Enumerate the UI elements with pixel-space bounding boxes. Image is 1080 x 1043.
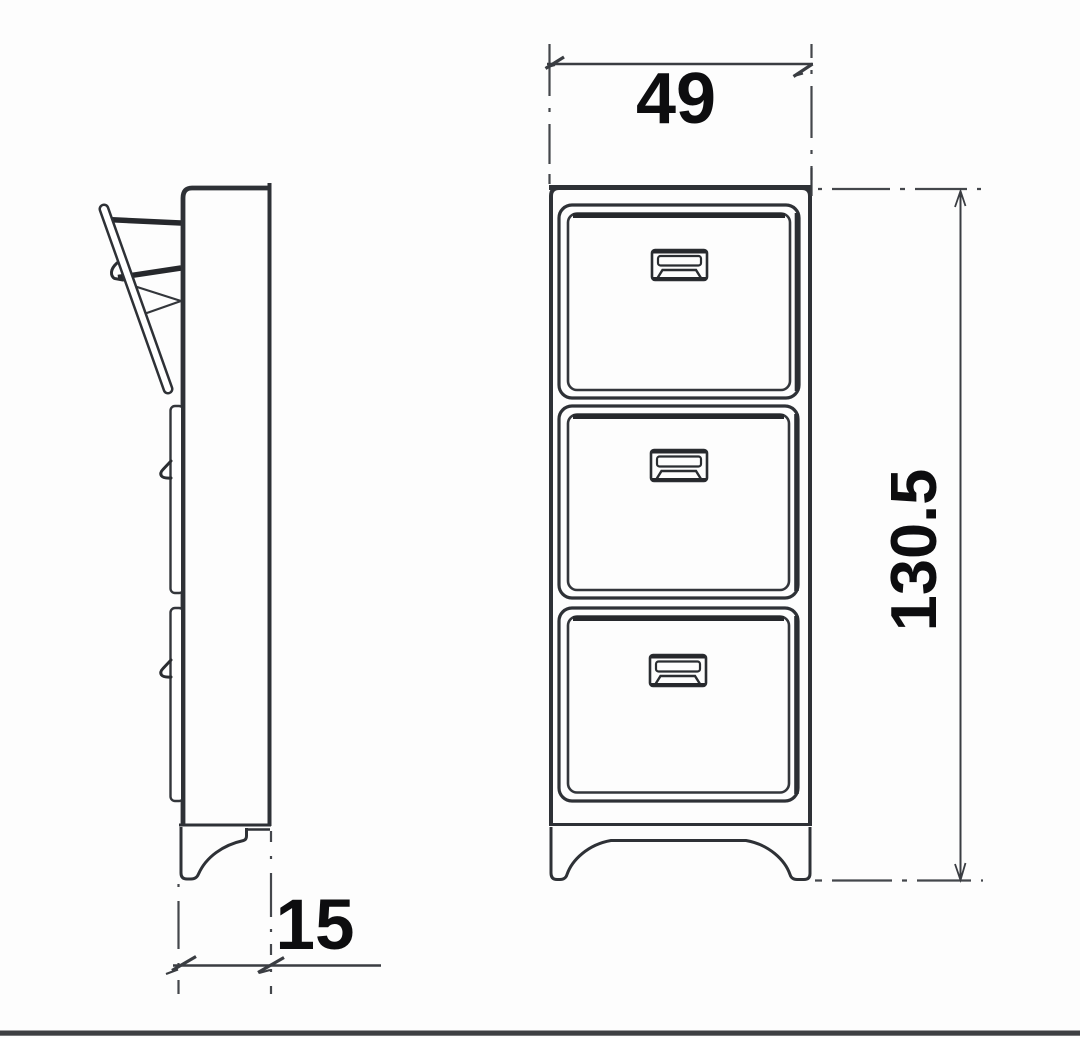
svg-text:15: 15: [276, 886, 355, 965]
svg-text:130.5: 130.5: [877, 469, 950, 632]
svg-text:49: 49: [636, 59, 716, 139]
